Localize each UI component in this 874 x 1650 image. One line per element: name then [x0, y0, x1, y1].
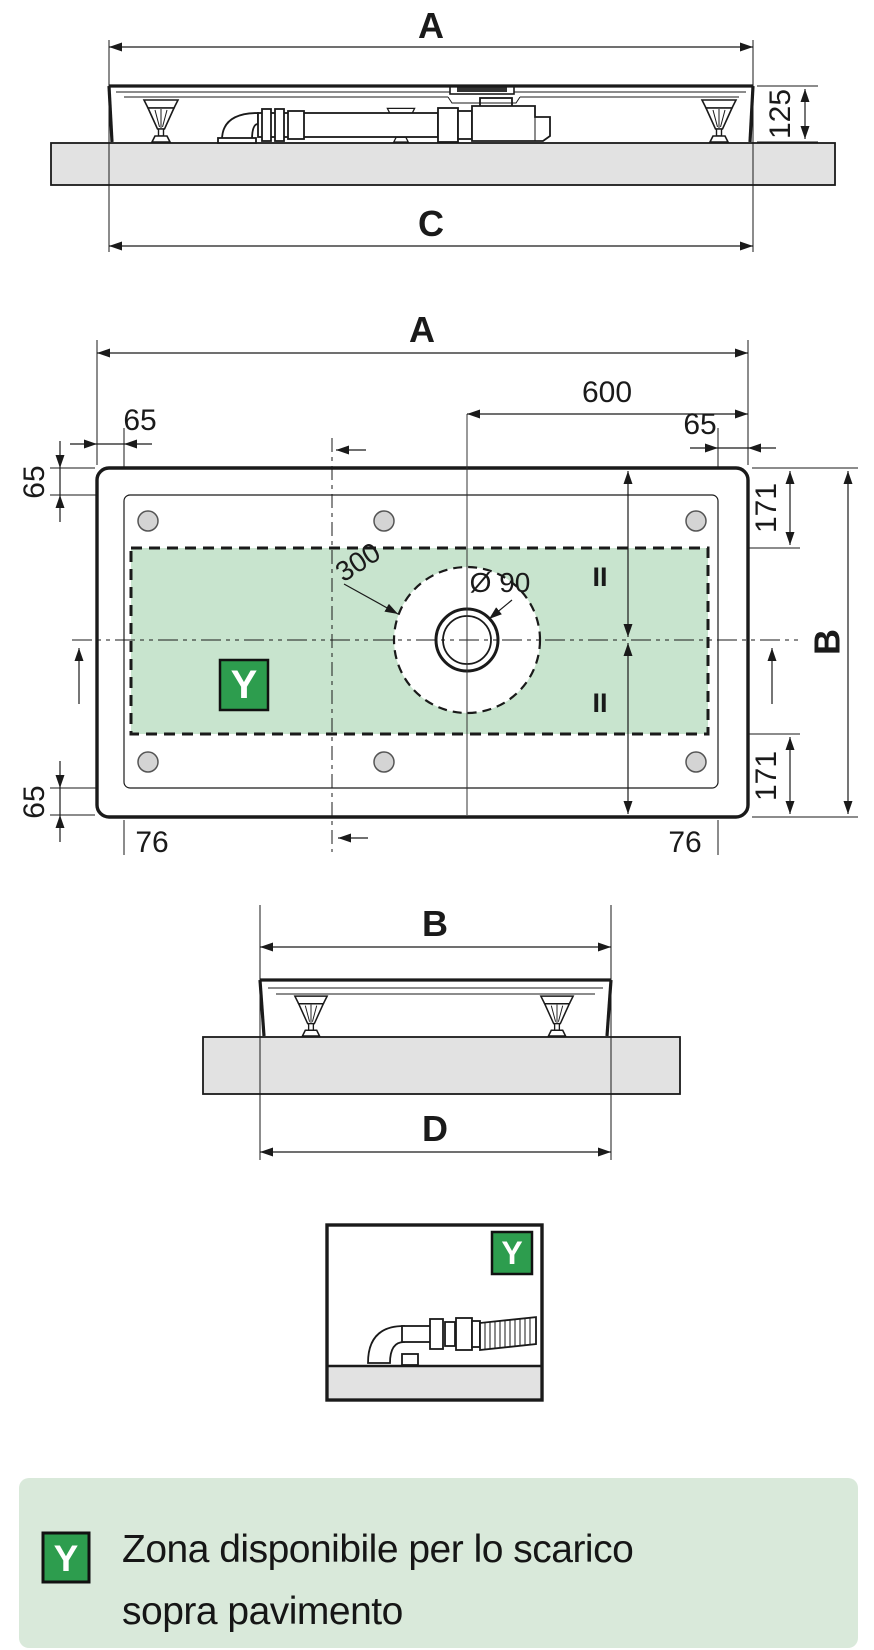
dimension-label-171-bottom: 171: [750, 751, 783, 801]
dimension-label-125: 125: [764, 89, 797, 139]
end-view-elevation: B D: [203, 903, 680, 1160]
legend-text-line1: Zona disponibile per lo scarico: [122, 1528, 633, 1571]
pipe-elbow: [222, 113, 258, 140]
technical-drawing-page: A 125 C: [0, 0, 874, 1650]
corrugated-hose: [480, 1317, 536, 1350]
dimension-label-d: D: [422, 1108, 448, 1149]
floor-slab: [51, 143, 835, 185]
dimension-label-c: C: [418, 203, 444, 244]
dimension-label-b-plan: B: [807, 629, 848, 655]
drain-pipe-assembly: [218, 98, 550, 143]
dimension-label-b-end: B: [422, 903, 448, 944]
dimension-label-65-top-right: 65: [683, 408, 716, 441]
side-view-elevation: A 125 C: [51, 5, 835, 252]
plan-view: Y A 600 65 65 65 65 171 171 B: [18, 309, 858, 859]
legend-panel: Y Zona disponibile per lo scarico sopra …: [19, 1478, 858, 1648]
equal-mark-bottom: II: [592, 688, 607, 718]
floor-slab-end: [203, 1037, 680, 1094]
dimension-label-a-plan: A: [409, 309, 435, 350]
dimension-label-600: 600: [582, 376, 632, 409]
dimension-label-65-left-top: 65: [18, 465, 51, 498]
dimension-label-65-top-left: 65: [123, 404, 156, 437]
equal-mark-top: II: [592, 562, 607, 592]
zone-badge-y-label: Y: [231, 663, 258, 707]
legend-icon-y-label: Y: [54, 1538, 79, 1579]
drain-detail-box: Y: [327, 1225, 542, 1400]
shower-tray-technical-drawing: A 125 C: [0, 0, 874, 1650]
adjustable-foot: [144, 100, 178, 142]
adjustable-foot: [541, 996, 573, 1036]
dimension-label-76-right: 76: [668, 826, 701, 859]
legend-text-line2: sopra pavimento: [122, 1590, 403, 1633]
dimension-label-76-left: 76: [135, 826, 168, 859]
adjustable-foot: [295, 996, 327, 1036]
zone-badge-y-detail-label: Y: [501, 1235, 522, 1271]
drain-trap: [472, 106, 550, 141]
adjustable-foot: [702, 100, 736, 142]
dimension-label-65-left-bottom: 65: [18, 785, 51, 818]
dimension-label-a: A: [418, 5, 444, 46]
dimension-label-d90: Ø 90: [470, 567, 531, 598]
detail-floor: [329, 1367, 540, 1398]
dimension-label-171-top: 171: [750, 483, 783, 533]
drain-hose: [258, 113, 438, 137]
